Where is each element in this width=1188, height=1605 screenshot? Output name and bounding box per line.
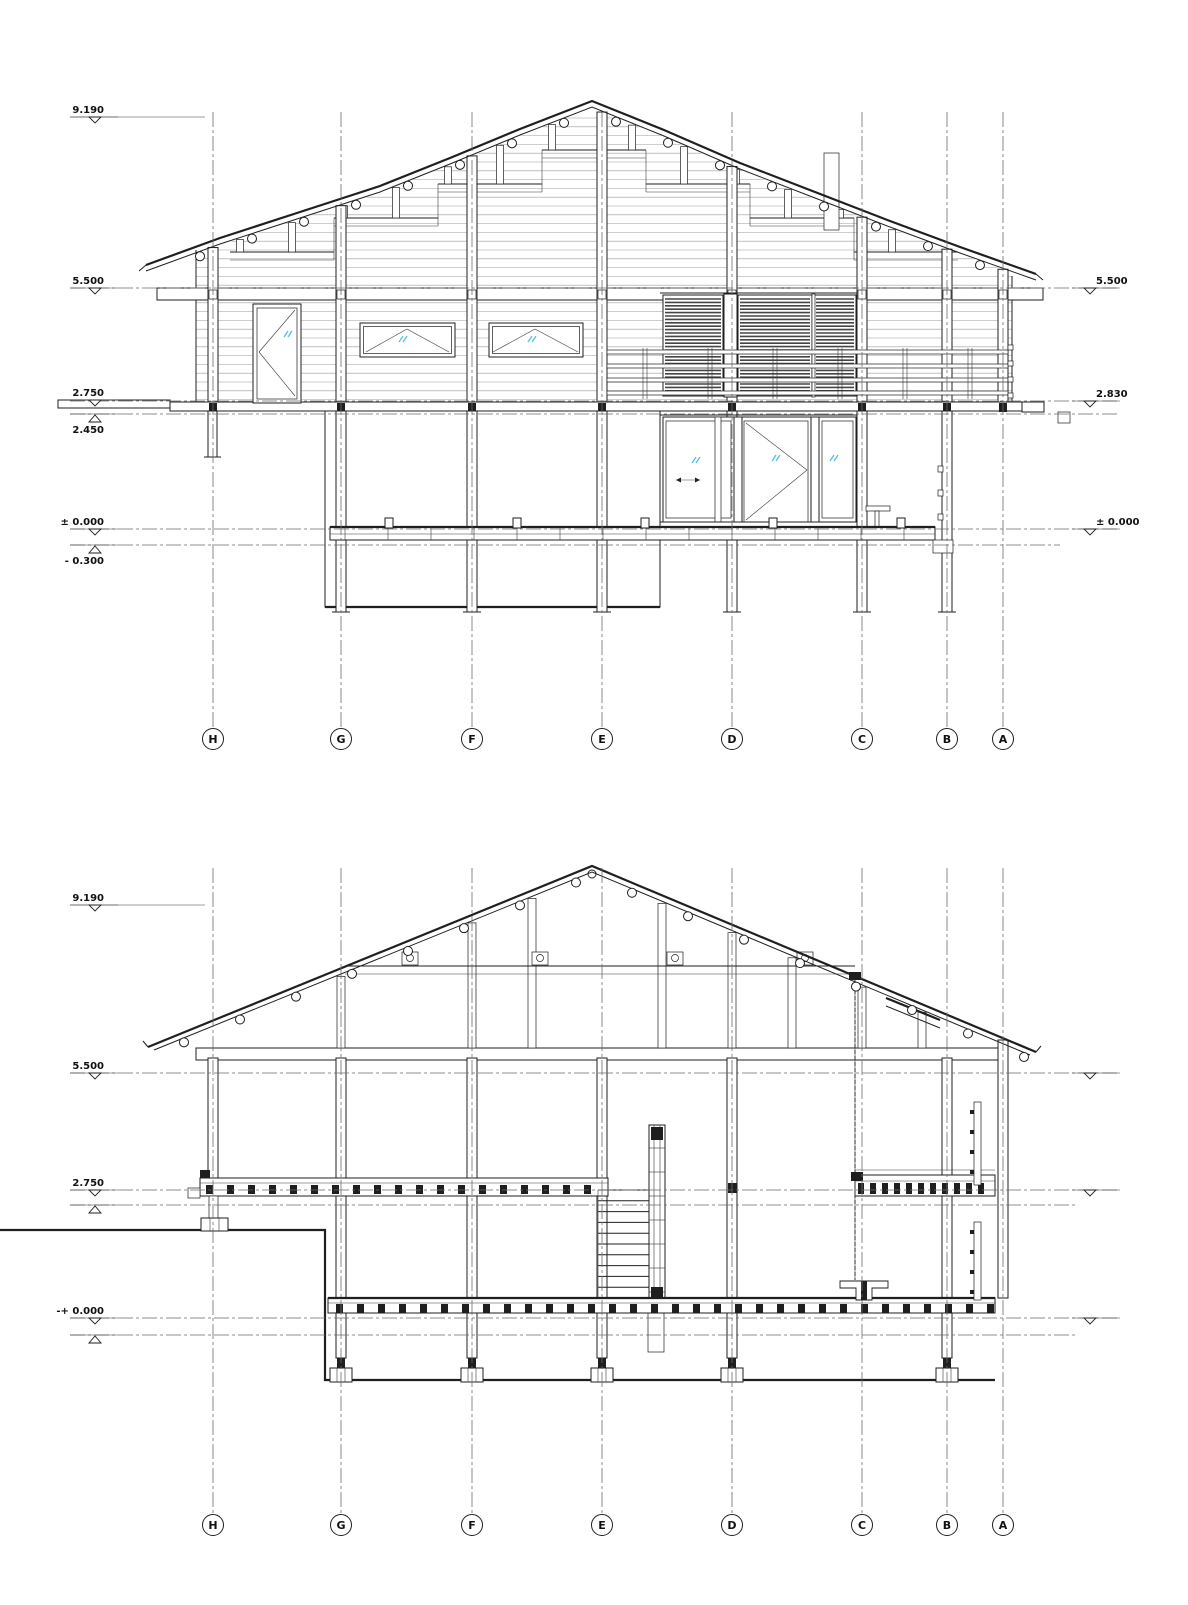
- grid-bubbles: HGFEDCBA: [203, 729, 1014, 750]
- level-marker-5.500: 5.500: [1072, 276, 1128, 294]
- grid-letter: A: [999, 1519, 1008, 1532]
- level-label: 5.500: [72, 276, 104, 287]
- level-label: 9.190: [72, 105, 104, 116]
- level-label: ± 0.000: [1096, 517, 1140, 528]
- upper-windows: [253, 304, 583, 403]
- grid-letter: G: [336, 1519, 345, 1532]
- roof: [143, 866, 1041, 1061]
- grid-bubble-E: E: [592, 729, 613, 750]
- grid-letter: D: [727, 733, 736, 746]
- footings: [330, 1358, 958, 1382]
- level-marker: [1072, 1318, 1120, 1324]
- level-marker-2.450: 2.450: [70, 414, 118, 436]
- grid-letter: C: [858, 733, 866, 746]
- grid-bubble-C: C: [852, 1515, 873, 1536]
- level-label: 2.750: [72, 1178, 104, 1189]
- lower-glazing: [660, 415, 857, 528]
- level-marker: [1072, 1190, 1120, 1196]
- level-marker-2.750: 2.750: [70, 1178, 118, 1196]
- level-marker-0.000: ± 0.000: [1072, 517, 1140, 535]
- grid-letter: F: [468, 1519, 476, 1532]
- grid-bubble-H: H: [203, 729, 224, 750]
- level-marker: [1072, 1073, 1120, 1079]
- lower-section-view: [0, 866, 1041, 1382]
- masonry-pier: [648, 1313, 664, 1352]
- level-label: 2.450: [72, 425, 104, 436]
- level-marker-5.500: 5.500: [70, 276, 118, 294]
- grid-letter: D: [727, 1519, 736, 1532]
- upper-floor-band: [188, 1170, 995, 1198]
- level-label: 9.190: [72, 893, 104, 904]
- drawing-sheet: HGFEDCBA9.1905.5002.7502.450± 0.000- 0.3…: [0, 0, 1188, 1600]
- level-marker-2.830: 2.830: [1072, 389, 1128, 407]
- level-label: -+ 0.000: [56, 1306, 104, 1317]
- level-label: 2.830: [1096, 389, 1128, 400]
- grid-bubble-A: A: [993, 729, 1014, 750]
- level-marker-9.190: 9.190: [70, 105, 118, 123]
- edge-clips: [970, 1102, 981, 1300]
- grid-bubble-A: A: [993, 1515, 1014, 1536]
- grid-bubble-B: B: [937, 1515, 958, 1536]
- grid-bubble-F: F: [462, 729, 483, 750]
- level-marker-5.500: 5.500: [70, 1061, 118, 1079]
- level-label: 5.500: [1096, 276, 1128, 287]
- bench: [866, 345, 1013, 528]
- grid-bubble-G: G: [331, 729, 352, 750]
- stone-veneer-wall: [325, 405, 660, 607]
- grid-letter: G: [336, 733, 345, 746]
- ground-floor-band: [328, 1298, 995, 1313]
- grid-bubble-H: H: [203, 1515, 224, 1536]
- grid-letter: F: [468, 733, 476, 746]
- roof: [139, 101, 1043, 280]
- grid-letter: E: [598, 733, 606, 746]
- grid-bubble-F: F: [462, 1515, 483, 1536]
- grid-bubble-D: D: [722, 1515, 743, 1536]
- architectural-drawing: HGFEDCBA9.1905.5002.7502.450± 0.000- 0.3…: [0, 0, 1188, 1600]
- level-label: 2.750: [72, 388, 104, 399]
- grid-letter: B: [943, 733, 951, 746]
- chimney: [824, 153, 839, 230]
- level-marker-0.000: -+ 0.000: [56, 1306, 118, 1324]
- level-marker-0.000: ± 0.000: [61, 517, 119, 535]
- level-label: ± 0.000: [61, 517, 105, 528]
- level-marker-9.190: 9.190: [70, 893, 118, 911]
- level-lines: [70, 905, 1118, 1335]
- grid-bubble-E: E: [592, 1515, 613, 1536]
- grid-letter: E: [598, 1519, 606, 1532]
- level-marker-0.300: - 0.300: [65, 545, 118, 567]
- built-up-post: [649, 1125, 665, 1303]
- grid-bubble-G: G: [331, 1515, 352, 1536]
- grid-letter: B: [943, 1519, 951, 1532]
- level-marker: [70, 1205, 118, 1213]
- level-label: 5.500: [72, 1061, 104, 1072]
- grid-bubble-D: D: [722, 729, 743, 750]
- grid-letter: C: [858, 1519, 866, 1532]
- grid-letter: H: [208, 1519, 217, 1532]
- level-label: - 0.300: [65, 556, 104, 567]
- level-marker: [70, 1335, 118, 1343]
- grid-bubbles: HGFEDCBA: [203, 1515, 1014, 1536]
- grid-bubble-C: C: [852, 729, 873, 750]
- grid-letter: H: [208, 733, 217, 746]
- upper-elevation-view: [58, 101, 1070, 612]
- grid-bubble-B: B: [937, 729, 958, 750]
- grid-letter: A: [999, 733, 1008, 746]
- roof-framing: [337, 870, 940, 1048]
- left-support-footing: [201, 1196, 228, 1231]
